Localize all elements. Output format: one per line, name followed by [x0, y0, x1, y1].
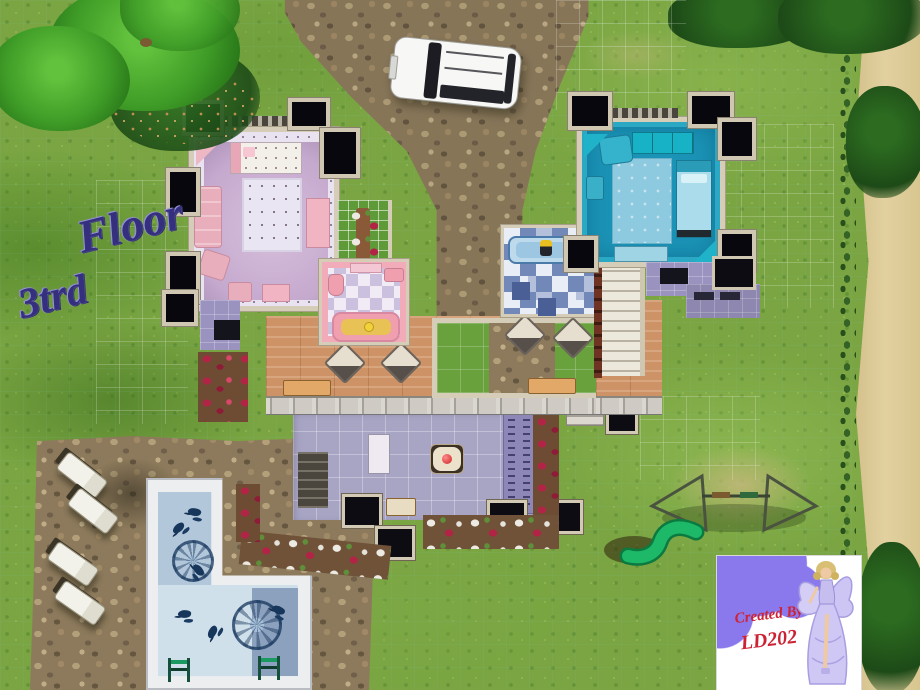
pool-mosaic-medallion — [172, 540, 214, 582]
tree-canopy[interactable] — [846, 86, 920, 198]
fairy-figure — [793, 558, 859, 688]
rug-pattern — [523, 419, 530, 507]
pool-ladder[interactable] — [168, 658, 190, 682]
small-chair[interactable] — [586, 176, 604, 200]
flower-bed[interactable] — [198, 352, 248, 422]
blue-bed[interactable] — [676, 160, 712, 238]
roof-trim — [612, 108, 678, 118]
toilet[interactable] — [328, 274, 344, 296]
bed-headboard — [677, 161, 711, 172]
fairy-bodice — [819, 580, 835, 604]
white-suv-car[interactable] — [389, 35, 523, 110]
roof-section — [214, 320, 240, 340]
palm-trunk — [140, 38, 152, 47]
stairwell-opening[interactable] — [298, 452, 328, 508]
tower-cap — [288, 98, 330, 130]
patio-rug[interactable] — [503, 414, 537, 514]
bath-mat — [538, 298, 556, 316]
rubber-duck — [364, 322, 374, 332]
window-bench[interactable] — [614, 246, 668, 262]
fairy-hair-curl — [813, 572, 821, 580]
blue-rug[interactable] — [612, 158, 672, 244]
white-cabinet[interactable] — [368, 434, 390, 474]
tower-cap — [718, 118, 756, 160]
palm-tree-cluster[interactable] — [0, 0, 280, 161]
teal-armchair[interactable] — [598, 134, 634, 166]
bed-pillow — [681, 174, 707, 183]
flower-bed[interactable] — [423, 515, 559, 549]
pink-dresser[interactable] — [306, 198, 330, 248]
bath-fixture[interactable] — [540, 240, 552, 256]
rug-pattern — [508, 419, 515, 507]
sink[interactable] — [384, 268, 404, 282]
deck-bench[interactable] — [528, 378, 576, 394]
fairy-leg-front — [825, 616, 827, 668]
deck-railing — [596, 396, 662, 415]
pool-ladder[interactable] — [258, 656, 280, 680]
deck-bench[interactable] — [283, 380, 331, 396]
patio-bench[interactable] — [386, 498, 416, 516]
fairy-hair-curl — [831, 572, 839, 580]
tower-cap — [568, 92, 612, 130]
tree-canopy[interactable] — [858, 542, 920, 690]
sims-lot-aerial-view: 3trd Floor Created By LD202 — [0, 0, 920, 690]
staircase[interactable] — [600, 252, 645, 376]
flower-bed[interactable] — [236, 484, 260, 542]
swing-seat — [740, 492, 758, 498]
bed-footboard — [677, 230, 711, 237]
fairy-shoe — [821, 668, 830, 674]
creator-watermark: Created By LD202 — [717, 556, 861, 690]
tree-canopy[interactable] — [778, 0, 920, 54]
pink-table[interactable] — [262, 284, 290, 302]
bathtub[interactable] — [332, 312, 400, 342]
roof-section — [712, 256, 756, 290]
skylight — [694, 292, 714, 300]
roof-section — [660, 268, 688, 284]
fountain[interactable] — [430, 444, 464, 474]
fountain-center — [442, 454, 452, 464]
skylight — [720, 292, 740, 300]
tower-cap — [320, 128, 360, 178]
bath-mat — [512, 282, 530, 300]
fairy-face — [821, 568, 832, 579]
teal-cabinets[interactable] — [632, 132, 694, 154]
bath-counter[interactable] — [350, 263, 382, 273]
tower-cap — [564, 236, 598, 272]
polka-dot-rug[interactable] — [242, 178, 302, 252]
green-slide[interactable] — [600, 506, 710, 572]
flower-bed[interactable] — [533, 415, 559, 515]
swing-seat — [712, 492, 730, 498]
floor-label-word1: 3trd — [13, 265, 93, 329]
column-pillar[interactable] — [342, 494, 382, 528]
